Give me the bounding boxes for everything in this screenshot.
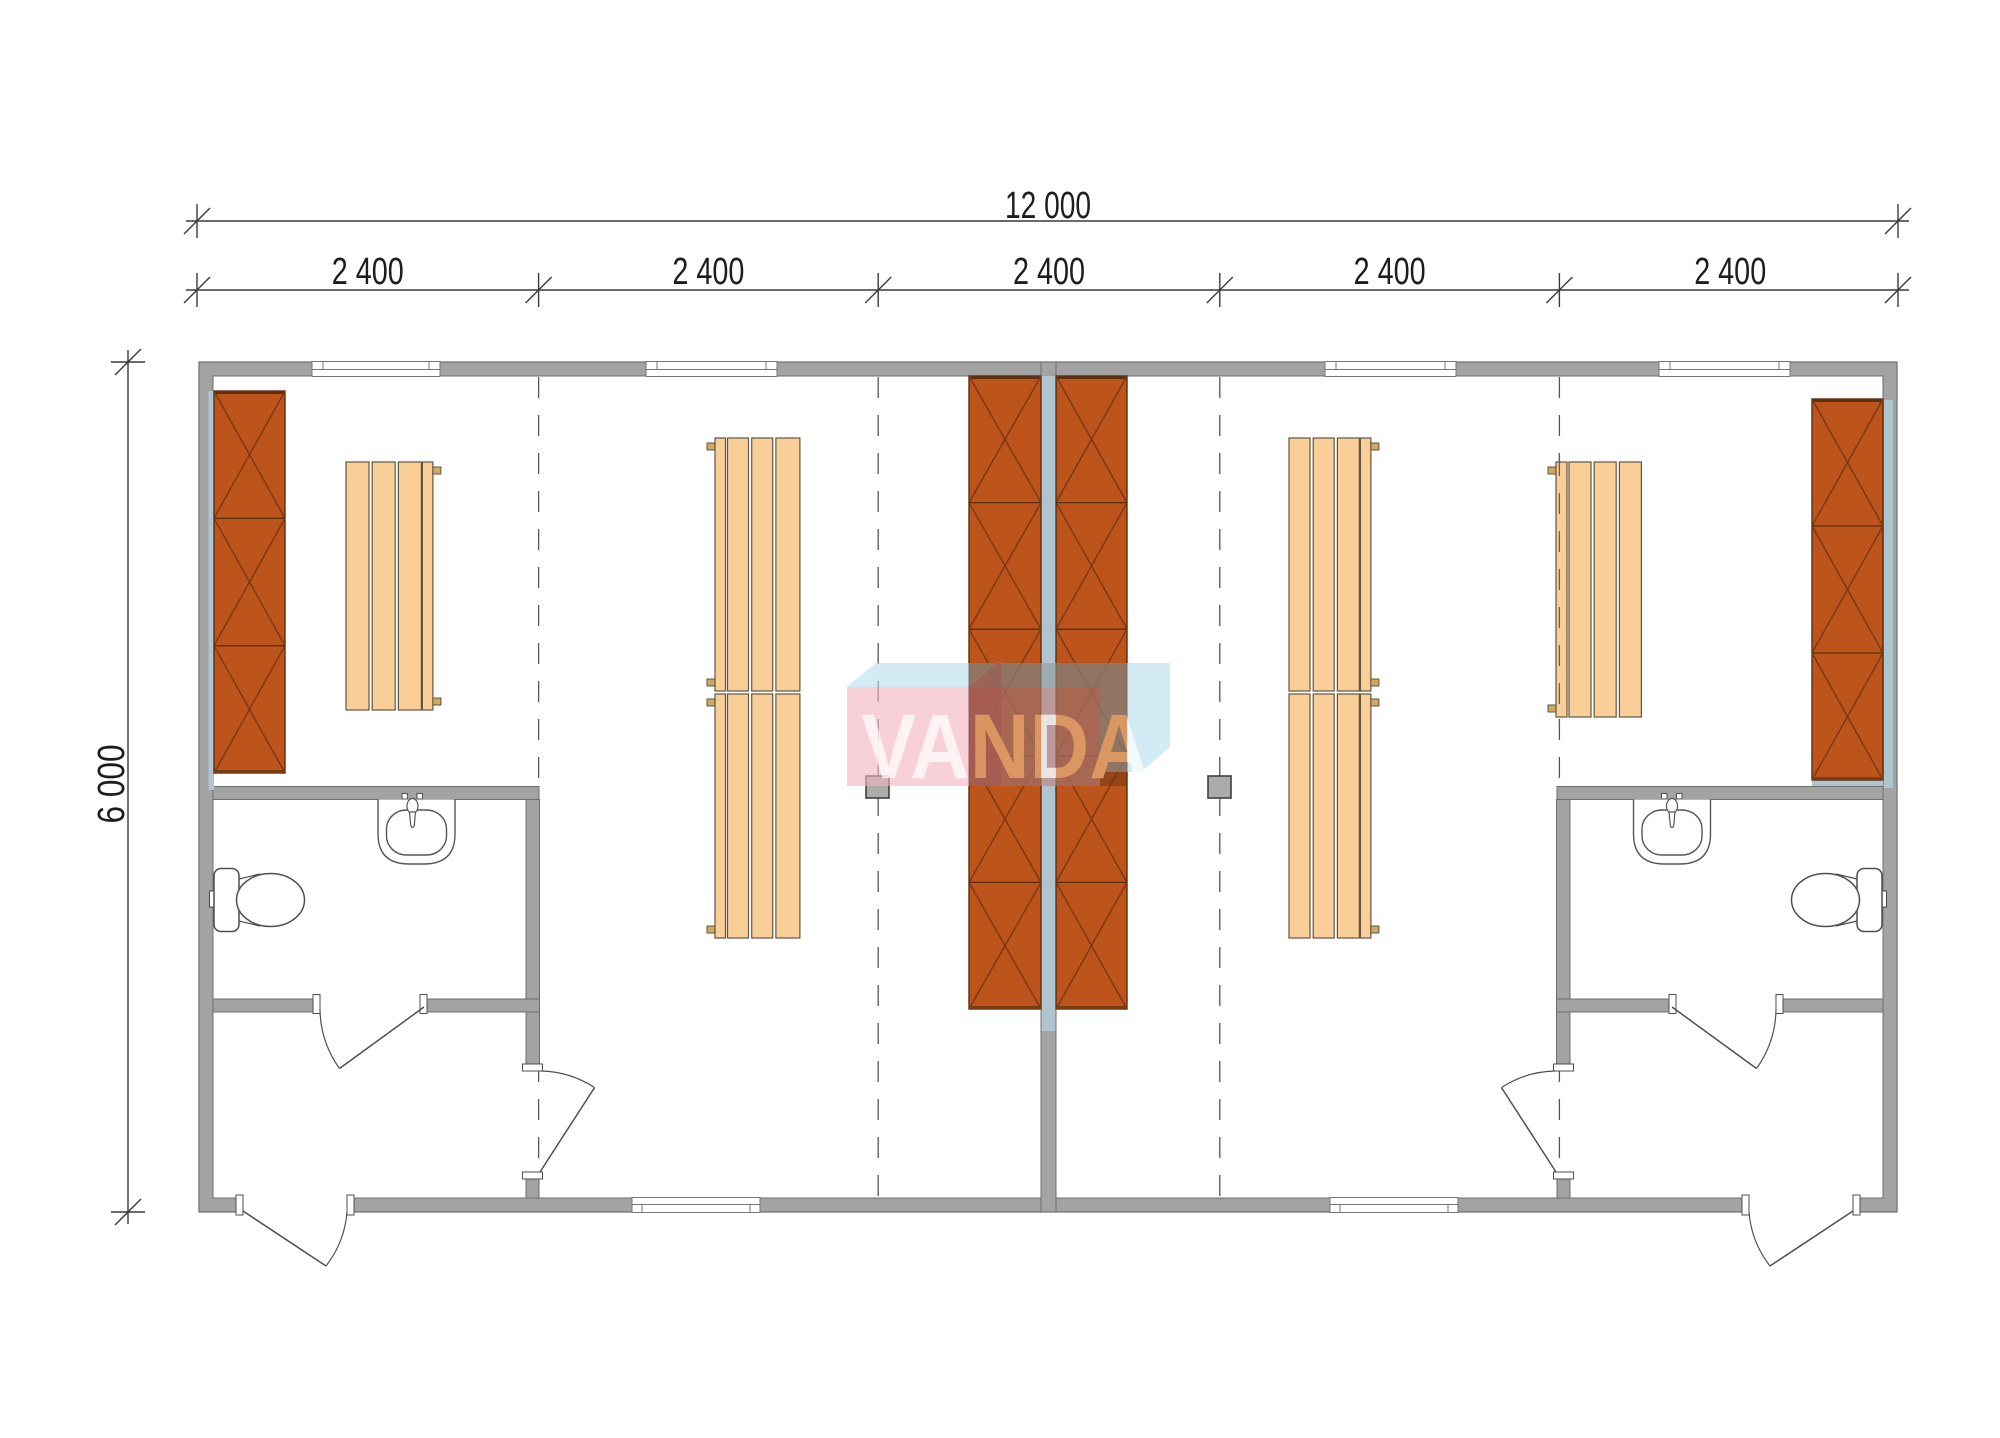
svg-text:6 000: 6 000	[91, 745, 133, 824]
svg-text:2 400: 2 400	[1694, 251, 1766, 293]
svg-text:2 400: 2 400	[1354, 251, 1426, 293]
svg-text:2 400: 2 400	[1013, 251, 1085, 293]
svg-text:2 400: 2 400	[332, 251, 404, 293]
svg-text:12 000: 12 000	[1005, 185, 1091, 227]
svg-text:2 400: 2 400	[672, 251, 744, 293]
